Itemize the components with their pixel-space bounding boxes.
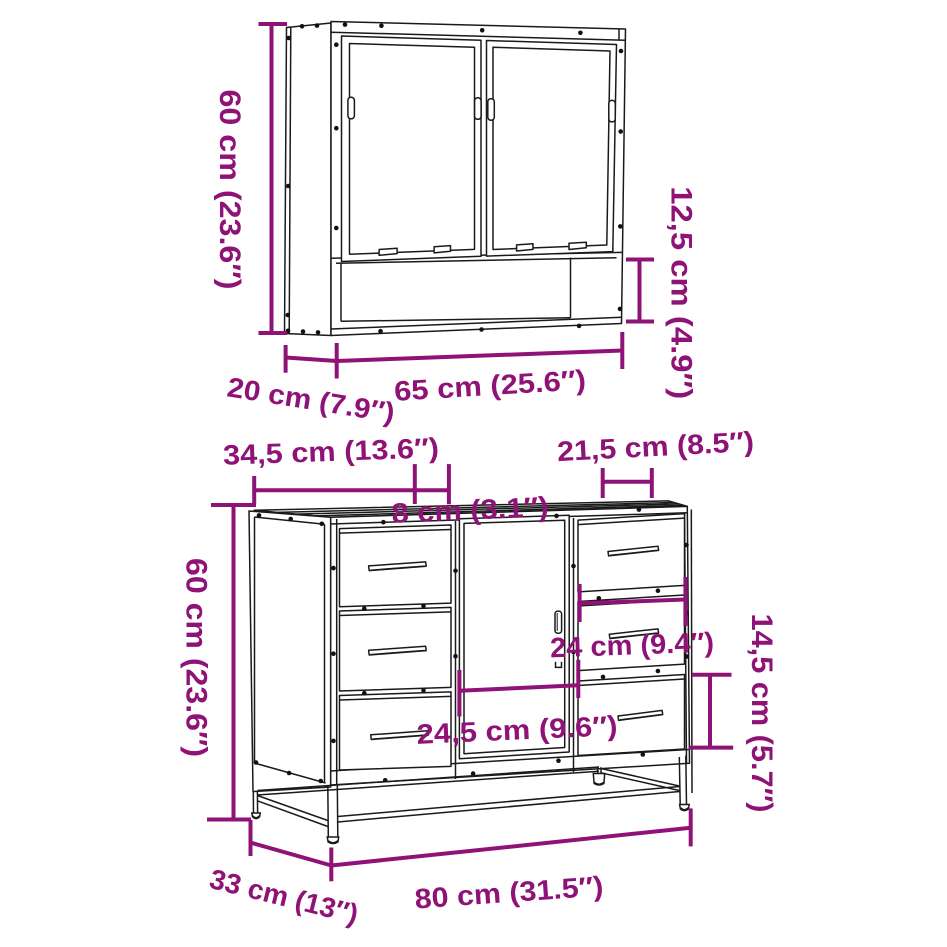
svg-text:60 cm (23.6″): 60 cm (23.6″) <box>180 558 213 757</box>
svg-text:14,5 cm (5.7″): 14,5 cm (5.7″) <box>745 614 778 813</box>
svg-text:60 cm (23.6″): 60 cm (23.6″) <box>213 90 246 290</box>
svg-text:24 cm (9.4″): 24 cm (9.4″) <box>550 627 715 664</box>
svg-text:12,5 cm (4.9″): 12,5 cm (4.9″) <box>665 186 698 399</box>
